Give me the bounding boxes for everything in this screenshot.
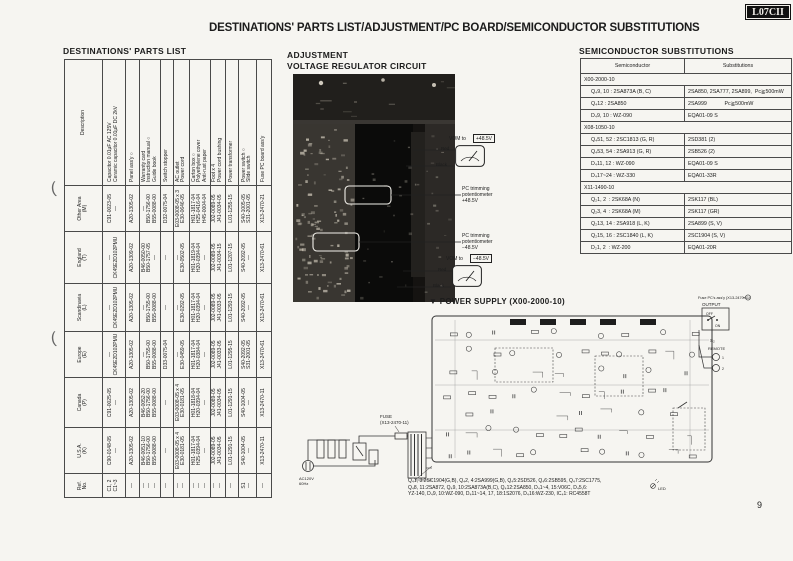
parts-number-cell: E03-0008-05 x 4 E30-0181-05 [173,428,190,474]
parts-number-cell: H01-1817-04 H25-0416-04 H45-0004-04 [190,186,211,232]
substitution-value: 2SA999 Pc≧500mW [685,98,792,110]
substitution-value: 2SK117 (GR) [685,206,792,218]
substitution-value: EQA01-09 S [685,158,792,170]
trim-plus-note: PC trimming potentiometer +48.5V [462,186,493,204]
parts-number-cell: L01-1255-15 [225,186,238,232]
parts-number-cell: L01-1293-15 [225,284,238,332]
parts-number-cell: — — [211,474,226,498]
parts-number-cell: A20-1309-02 [125,232,140,284]
parts-col-header: Canada (P) [65,378,103,428]
parts-number-cell: — [161,474,174,498]
semi-col-header: Semiconductor [581,59,685,74]
parts-row: C1, 2 C1~3C90-0148-05 —C91-0025-05 —— CK… [102,60,125,498]
power-transformer-symbol [408,432,432,478]
substitution-row: Q₄9, 10 : 2SA873A (B, C)2SA850, 2SA777, … [581,86,792,98]
parts-number-cell: C1, 2 C1~3 [102,474,125,498]
parts-row: — — —H01-1817-04 H25-0394-04 —H01-1818-0… [190,60,211,498]
ps-note-line: YZ-140, D₄9, 10:WZ-090, D₄11~14, 17, 18:… [408,491,676,498]
parts-number-cell: — B50-1755-00 B55-0088-00 [140,284,161,332]
vom-minus-label: VOM to [446,256,463,262]
parts-number-cell: — B50-1755-00 B55-0088-00 [140,332,161,378]
parts-number-cell: — [125,474,140,498]
substitution-value: 2SA850, 2SA777, 2SA899, Pc≧500mW [685,86,792,98]
substitution-row: Q₂3, 4 : 2SK68A (M)2SK117 (GR) [581,206,792,218]
parts-number-cell: J02-0089-05 J41-0034-05 [211,378,226,428]
substitution-value: EQA01-33R [685,170,792,182]
substitution-value: EQA01-20R [685,242,792,254]
parts-list-heading: DESTINATIONS' PARTS LIST [63,46,186,56]
parts-number-cell: J02-0089-05 J41-0033-05 [211,284,226,332]
parts-number-cell: B46-0050-00 B50-1757-05 — [140,232,161,284]
parts-description-cell: Carton box ○ Polyethylene cover Anti-rus… [190,60,211,186]
vom-plus-label: VOM to [449,136,466,142]
substitution-value: 2SB526 (2) [685,146,792,158]
parts-number-cell: J02-0089-05 J41-0034-15 [211,232,226,284]
substitution-row: Q₂1, 2 : 2SK68A (N)2SK117 (BL) [581,194,792,206]
parts-row: —A20-1305-02A20-1305-02A20-1305-02A20-13… [125,60,140,498]
substitution-row: D₄11, 12 : WZ-090EQA01-09 S [581,158,792,170]
parts-number-cell: X13-2470-11 [257,378,272,428]
parts-number-cell: — [225,474,238,498]
primary-circuit [303,402,688,472]
substitution-value: 2SA899 (S, V) [685,218,792,230]
substitution-row: Q₂15, 16 : 2SC1840 (L, K)2SC1904 (S, V) [581,230,792,242]
substitution-value: 2SK117 (BL) [685,194,792,206]
parts-col-header: England (T) [65,232,103,284]
parts-number-cell: — [161,284,174,332]
parts-number-cell: — B50-1756-00 B55-0088-00 [140,186,161,232]
parts-list-table: Ref. No.U.S.A. (K)Canada (P)Europe (E)Sc… [64,59,272,498]
parts-number-cell: H01-1817-04 H20-0384-04 — [190,332,211,378]
parts-description-cell: Power transformer [225,60,238,186]
parts-number-cell: — CK45E2D102PMU [102,284,125,332]
parts-number-cell: J02-0089-05 J41-0034-05 [211,428,226,474]
parts-description-cell: Switch stopper [161,60,174,186]
substitution-row: D₂1, 2 : WZ-200EQA01-20R [581,242,792,254]
parts-list-table-rotated: Ref. No.U.S.A. (K)Canada (P)Europe (E)Sc… [64,60,272,498]
parts-number-cell: E03-0008-05 x 4 E30-0181-05 [173,378,190,428]
parts-description-cell: Foot x 4 Power cord bushing [211,60,226,186]
vom-minus-meter-icon [452,265,482,287]
vom-minus-value: −48.5V [470,254,492,263]
board-number: X11-1490-10 [581,182,792,194]
parts-number-cell: — — [173,474,190,498]
parts-number-cell: J02-0089-05 J41-0034-05 [211,186,226,232]
parts-number-cell: C91-0023-05 — [102,186,125,232]
original-semiconductor: Q₂15, 16 : 2SC1840 (L, K) [581,230,685,242]
model-badge: L07CII [745,4,791,20]
semiconductor-table: SemiconductorSubstitutionsX00-2000-10Q₄9… [580,58,792,254]
parts-number-cell: — — — [190,474,211,498]
output-on-label: ON [715,324,721,328]
output-switch: OFF ON [702,308,729,335]
output-off-label: OFF [706,312,713,316]
parts-col-header: Europe (E) [65,332,103,378]
parts-description-cell: Fuse PC board ass'y [257,60,272,186]
parts-number-cell: L01-1207-15 [225,232,238,284]
vom-plus-red-label: Red [441,146,449,151]
parts-description-cell: Warranty card Instruction manual ○ Guide… [140,60,161,186]
parts-number-cell: — — — [140,474,161,498]
fuse-pc-label: Fuse PC's ass'y (X13-2470-11) [698,296,751,300]
ps-note-line: Q₄8, 11:2SA872, Q₄9, 10:2SA873A(B,C), Q₄… [408,485,676,492]
parts-number-cell: E03-0008-05 x 3 E30-0646-05 [173,186,190,232]
original-semiconductor: Q₄9, 10 : 2SA873A (B, C) [581,86,685,98]
parts-row: — —J02-0089-05 J41-0034-05J02-0089-05 J4… [211,60,226,498]
parts-description-cell: AC outlet Power cord [173,60,190,186]
parts-number-cell: B46-0051-10 B50-1756-00 B55-0088-00 [140,428,161,474]
remote-terminal-1: 1 [722,356,724,360]
parts-number-cell: L01-1295-15 [225,332,238,378]
parts-number-cell: D32-0075-04 [161,186,174,232]
vom-plus-value: +48.5V [473,134,495,143]
fuse-label-line2: (X13-2470-11) [380,420,409,425]
parts-number-cell: — E30-0292-05 [173,284,190,332]
s2-label: S₂ [710,338,715,343]
parts-number-cell: A20-1305-02 [125,186,140,232]
page-title: DESTINATIONS' PARTS LIST/ADJUSTMENT/PC B… [209,22,700,34]
component-ref-boxes [510,319,656,325]
parts-number-cell: X13-2470-61 [257,332,272,378]
parts-col-header: Other Area (M) [65,186,103,232]
remote-terminal-2: 2 [722,367,724,371]
parts-number-cell: A20-1305-02 [125,284,140,332]
binding-mark-bottom: ( [50,330,57,348]
parts-number-cell: — E30-0502-05 [173,232,190,284]
manual-page: L07CII DESTINATIONS' PARTS LIST/ADJUSTME… [0,0,793,561]
parts-number-cell: — [161,232,174,284]
original-semiconductor: D₂1, 2 : WZ-200 [581,242,685,254]
parts-row: — — —B46-0051-10 B50-1756-00 B55-0088-00… [140,60,161,498]
original-semiconductor: Q₄12 : 2SA850 [581,98,685,110]
substitution-value: EQA01-09 S [685,110,792,122]
parts-description-cell: Power switch ○ Slide switch [238,60,257,186]
parts-number-cell: S40-1005-05 S31-2001-05 [238,186,257,232]
power-supply-schematic: FUSE (X13-2470-11) AC120V 60Hz Fuse PC's… [295,290,793,508]
substitution-row: Q₂13, 14 : 2SA918 (L, K)2SA899 (S, V) [581,218,792,230]
parts-number-cell: S1 — [238,474,257,498]
original-semiconductor: D₄17~24 : WZ-330 [581,170,685,182]
vom-minus-red-label: Red [438,267,446,272]
vom-plus-black-label: Black [436,162,447,167]
schematic-components [444,328,700,458]
parts-number-cell: X13-2470-61 [257,284,272,332]
parts-row: S1 —S40-1004-05 —S40-1004-05 —S40-2092-0… [238,60,257,498]
original-semiconductor: D₄11, 12 : WZ-090 [581,158,685,170]
substitution-value: 2SC1904 (S, V) [685,230,792,242]
parts-number-cell: — CK45E2D102PMU [102,232,125,284]
parts-number-cell: L01-1291-15 [225,378,238,428]
parts-number-cell: J02-0089-05 J41-0033-05 [211,332,226,378]
parts-number-cell: C90-0148-05 — [102,428,125,474]
parts-number-cell: A20-1305-02 [125,332,140,378]
parts-description-cell: Panel ass'y ○ [125,60,140,186]
parts-description-cell: Capacitor 0.01μF AC 125V Ceramic capacit… [102,60,125,186]
parts-number-cell: — [257,474,272,498]
parts-row: —L01-1291-15L01-1291-15L01-1295-15L01-12… [225,60,238,498]
trim-minus-note: PC trimming potentiometer −48.5V [462,233,493,251]
parts-row: — —E03-0008-05 x 4 E30-0181-05E03-0008-0… [173,60,190,498]
substitution-row: D₄9, 10 : WZ-090EQA01-09 S [581,110,792,122]
parts-number-cell: X13-2470-61 [257,232,272,284]
original-semiconductor: Q₂1, 2 : 2SK68A (N) [581,194,685,206]
power-supply-notes: Q₄1, 3:2SC1904(G,B), Q₄2, 4:2SA999(G,B),… [408,478,676,498]
parts-number-cell: H01-1817-04 H25-0394-04 — [190,428,211,474]
parts-number-cell: S40-2092-05 — [238,284,257,332]
binding-mark-top: ( [50,180,57,198]
ps-note-line: Q₄1, 3:2SC1904(G,B), Q₄2, 4:2SA999(G,B),… [408,478,676,485]
substitution-row: Q₄12 : 2SA8502SA999 Pc≧500mW [581,98,792,110]
vom-minus-black-label: Black [433,283,444,288]
board-number: X00-2000-10 [581,74,792,86]
ac-rating-line2: 60Hz [299,481,308,486]
adjustment-subheading: VOLTAGE REGULATOR CIRCUIT [287,61,427,71]
substitution-row: Q₄53, 54 : 2SA913 (G, R)2SB526 (2) [581,146,792,158]
parts-number-cell: — [161,428,174,474]
pcb-outline [432,316,712,462]
parts-number-cell: H01-1819-04 H20-0394-04 — [190,232,211,284]
page-number: 9 [757,500,762,510]
subs-col-header: Substitutions [685,59,792,74]
parts-row: ———D33-0075-04——D32-0075-04Switch stoppe… [161,60,174,498]
parts-number-cell: H01-1817-04 H20-0394-04 — [190,284,211,332]
original-semiconductor: D₄9, 10 : WZ-090 [581,110,685,122]
substitution-row: Q₄51, 52 : 2SC1813 (G, R)2SD381 (2) [581,134,792,146]
parts-number-cell: S40-1004-05 — [238,378,257,428]
original-semiconductor: Q₄51, 52 : 2SC1813 (G, R) [581,134,685,146]
original-semiconductor: Q₂3, 4 : 2SK68A (M) [581,206,685,218]
parts-number-cell: C91-0025-05 — [102,378,125,428]
parts-number-cell: H01-1818-04 H20-0394-04 — [190,378,211,428]
fuse-label-line1: FUSE [380,414,392,419]
parts-number-cell: S40-2092-05 S31-2001-05 [238,332,257,378]
board-number: X08-1050-10 [581,122,792,134]
parts-number-cell: S40-1004-05 — [238,428,257,474]
parts-col-header: Scandinavia (L) [65,284,103,332]
original-semiconductor: Q₂13, 14 : 2SA918 (L, K) [581,218,685,230]
parts-col-header: Description [65,60,103,186]
parts-col-header: Ref. No. [65,474,103,498]
parts-number-cell: D33-0075-04 [161,332,174,378]
substitution-row: D₄17~24 : WZ-330EQA01-33R [581,170,792,182]
parts-number-cell: S40-2092-05 — [238,232,257,284]
parts-number-cell: A20-1305-02 [125,428,140,474]
parts-number-cell: — E30-0459-05 [173,332,190,378]
output-label: OUTPUT [702,302,721,307]
semiconductor-heading: SEMICONDUCTOR SUBSTITUTIONS [579,46,734,56]
pcb-photo [293,74,565,304]
dashed-subcircuits [495,348,705,450]
parts-number-cell: L01-1291-15 [225,428,238,474]
parts-number-cell: — CK45E2D102PMU [102,332,125,378]
vom-plus-meter-icon [455,145,485,167]
parts-number-cell: B46-0052-20 B50-1756-00 B55-0088-00 [140,378,161,428]
parts-number-cell: X13-2470-11 [257,428,272,474]
parts-number-cell: — [161,378,174,428]
bus-lines [435,320,709,458]
remote-label: REMOTE [708,346,725,351]
parts-col-header: U.S.A. (K) [65,428,103,474]
parts-number-cell: A20-1305-02 [125,378,140,428]
adjustment-heading: ADJUSTMENT [287,50,348,60]
parts-number-cell: X13-2470-21 [257,186,272,232]
original-semiconductor: Q₄53, 54 : 2SA913 (G, R) [581,146,685,158]
substitution-value: 2SD381 (2) [685,134,792,146]
parts-row: —X13-2470-11X13-2470-11X13-2470-61X13-24… [257,60,272,498]
